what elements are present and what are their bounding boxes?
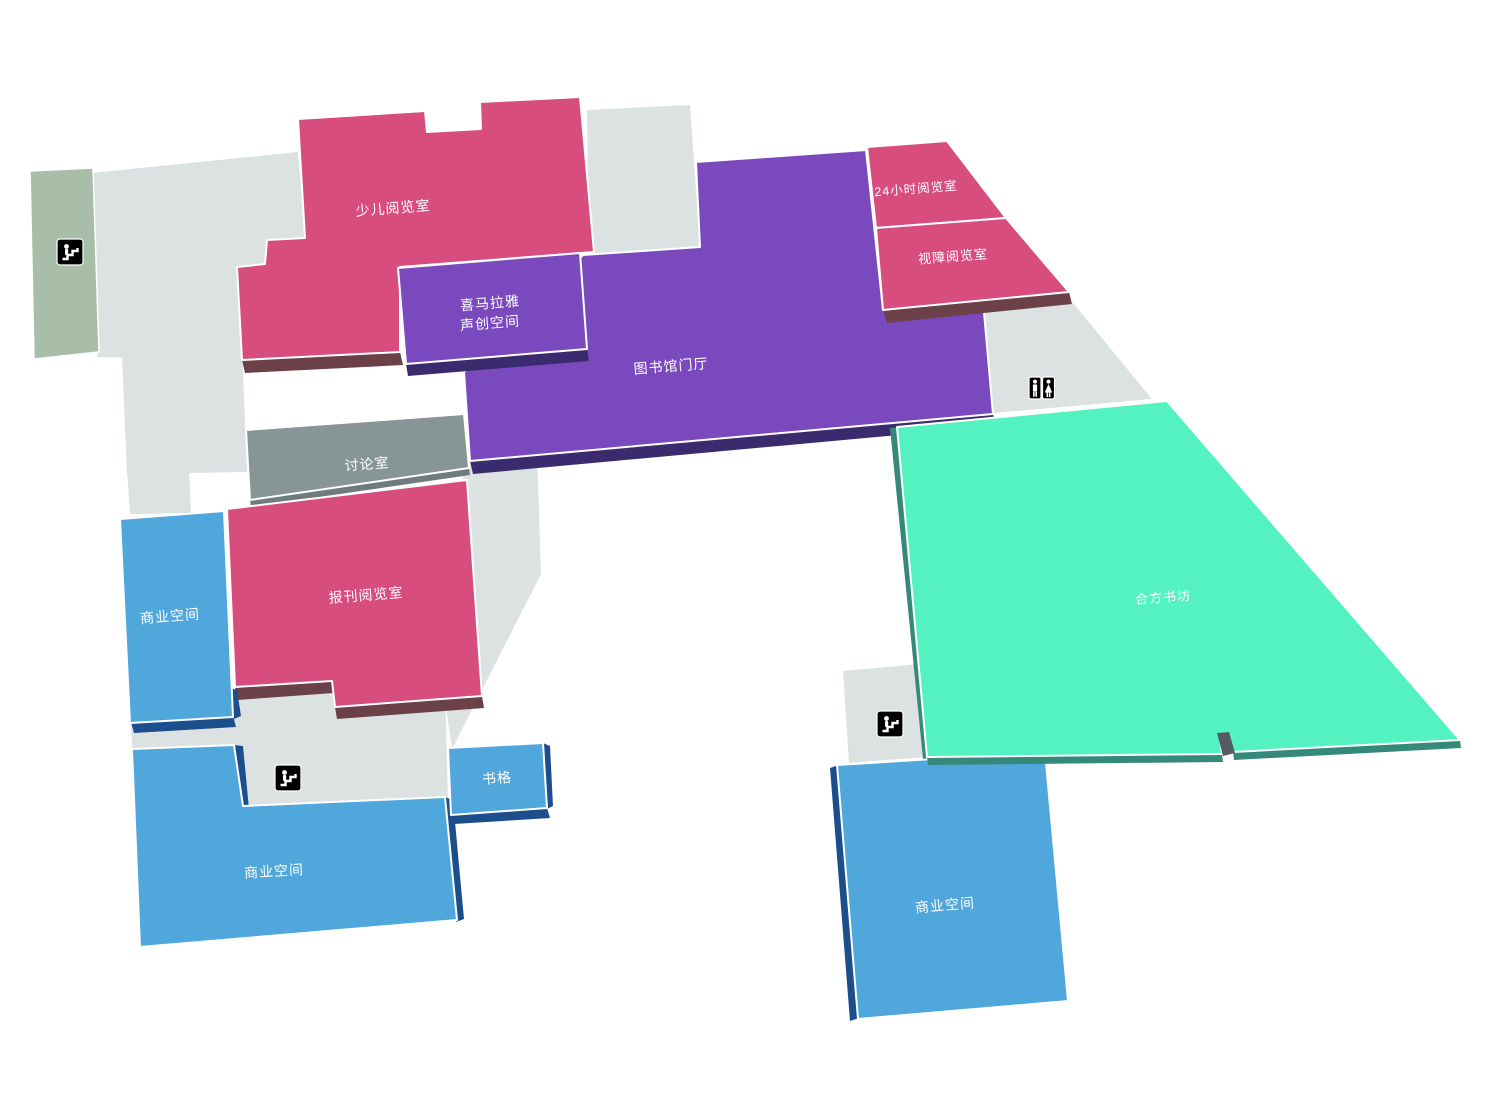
room-commercial-bottom-right	[830, 752, 1068, 1021]
library-floor-plan: 少儿阅览室 喜马拉雅 声创空间 图书馆门厅 24小时阅览室 视障阅览室 讨论室 …	[0, 0, 1500, 1115]
room-hefang-bookshop	[890, 401, 1461, 765]
commercial-bottom-right-shape[interactable]	[837, 752, 1068, 1019]
floor-left-column-lower	[127, 467, 191, 514]
escalator-icon	[57, 239, 83, 265]
escalator-icon	[877, 711, 903, 737]
escalator-icon	[275, 765, 301, 791]
floor-left-column	[122, 350, 247, 474]
room-24h-visually-impaired	[867, 141, 1072, 323]
floor-top-strip	[587, 105, 700, 254]
floor-corridor-right	[983, 300, 1152, 413]
hefang-bookshop-shape[interactable]	[897, 401, 1460, 757]
floor-plan-svg: 少儿阅览室 喜马拉雅 声创空间 图书馆门厅 24小时阅览室 视障阅览室 讨论室 …	[0, 0, 1500, 1115]
label-book-grid: 书格	[481, 769, 512, 787]
